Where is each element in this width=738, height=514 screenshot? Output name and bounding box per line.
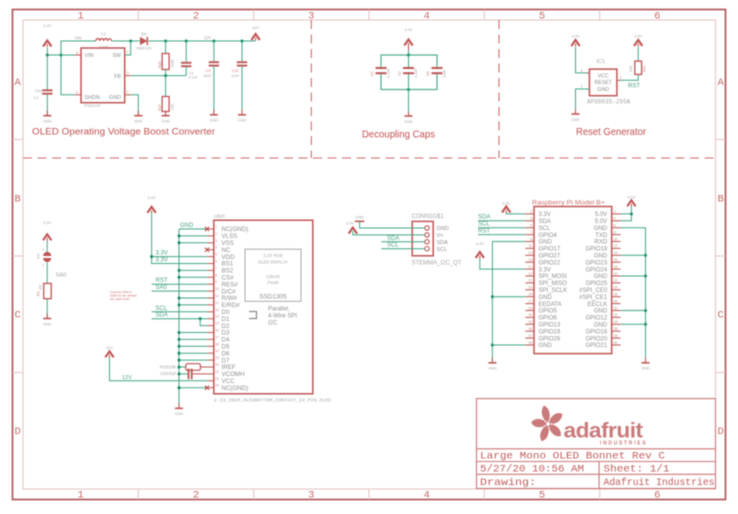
svg-text:R4: R4	[37, 292, 41, 296]
svg-text:12: 12	[614, 244, 618, 248]
svg-text:D: D	[718, 426, 724, 438]
svg-text:3.3V: 3.3V	[346, 222, 354, 226]
svg-text:VIN: VIN	[85, 53, 94, 59]
svg-text:13: 13	[215, 308, 219, 312]
svg-text:GPIO6: GPIO6	[539, 316, 558, 322]
svg-text:SHDN: SHDN	[85, 95, 100, 101]
svg-text:GND: GND	[404, 120, 413, 124]
svg-text:24: 24	[614, 286, 618, 290]
svg-text:3: 3	[215, 239, 217, 243]
svg-text:3: 3	[308, 490, 314, 502]
svg-text:5/27/20 10:56 AM: 5/27/20 10:56 AM	[480, 463, 584, 475]
svg-text:22: 22	[215, 370, 219, 374]
svg-text:5.0V: 5.0V	[627, 194, 636, 199]
svg-text:12V: 12V	[204, 35, 212, 40]
svg-text:D: D	[15, 426, 21, 438]
svg-text:C10: C10	[232, 69, 239, 73]
svg-text:GPIO26: GPIO26	[539, 336, 561, 342]
svg-text:SPI_MOSI: SPI_MOSI	[539, 274, 568, 280]
svg-text:4-Wire SPI: 4-Wire SPI	[268, 313, 297, 319]
svg-text:SCL: SCL	[156, 306, 168, 312]
svg-text:1: 1	[215, 225, 217, 229]
svg-text:GPIO21: GPIO21	[586, 343, 608, 349]
svg-text:R31: R31	[643, 66, 647, 72]
svg-text:R27: R27	[158, 104, 162, 111]
svg-text:SPI_SCLK: SPI_SCLK	[539, 288, 568, 294]
svg-text:7: 7	[215, 266, 217, 270]
svg-text:GND: GND	[597, 87, 609, 93]
svg-text:4: 4	[215, 246, 217, 250]
svg-text:10uF: 10uF	[443, 69, 447, 78]
svg-text:Pixels: Pixels	[267, 280, 278, 285]
svg-text:6: 6	[614, 224, 616, 228]
svg-text:GND: GND	[539, 240, 553, 246]
svg-text:GND: GND	[488, 367, 497, 371]
svg-text:1: 1	[78, 11, 84, 23]
svg-text:10uF: 10uF	[203, 74, 212, 78]
svg-text:4: 4	[76, 91, 78, 95]
svg-text:GND: GND	[43, 322, 52, 326]
svg-text:adafruit: adafruit	[564, 419, 643, 443]
svg-text:2: 2	[620, 76, 622, 80]
svg-text:3.3V: 3.3V	[43, 220, 52, 225]
svg-text:GND: GND	[594, 254, 608, 260]
svg-text:6: 6	[654, 11, 660, 23]
svg-text:L1: L1	[101, 31, 106, 36]
svg-text:GPIO24: GPIO24	[586, 267, 608, 273]
svg-text:21: 21	[215, 363, 219, 367]
svg-text:TXD: TXD	[595, 233, 608, 239]
svg-text:GND: GND	[571, 118, 580, 122]
svg-text:29: 29	[528, 306, 532, 310]
svg-text:20: 20	[614, 272, 618, 276]
svg-text:GND: GND	[539, 295, 553, 301]
svg-text:TPS61070: TPS61070	[84, 104, 101, 108]
svg-text:GPIO27: GPIO27	[539, 254, 561, 260]
svg-text:INDUSTRIES: INDUSTRIES	[600, 440, 647, 446]
svg-text:12: 12	[215, 301, 219, 305]
svg-text:10: 10	[614, 237, 618, 241]
svg-text:3.3V: 3.3V	[147, 195, 156, 200]
svg-text:22: 22	[614, 279, 618, 283]
svg-text:RST: RST	[156, 278, 168, 284]
svg-text:5: 5	[539, 11, 545, 23]
svg-text:128x32: 128x32	[266, 274, 280, 279]
svg-text:I2C addr 0x3C: I2C addr 0x3C	[110, 297, 131, 301]
svg-text:GND: GND	[594, 274, 608, 280]
svg-text:10K: 10K	[629, 65, 633, 72]
svg-text:Adafruit Industries: Adafruit Industries	[604, 477, 715, 488]
svg-text:1: 1	[78, 490, 84, 502]
svg-text:GND: GND	[594, 309, 608, 315]
svg-text:4: 4	[614, 217, 616, 221]
svg-text:Raspberry Pi Model B+: Raspberry Pi Model B+	[532, 200, 605, 207]
svg-text:30: 30	[614, 306, 618, 310]
svg-text:GND: GND	[594, 226, 608, 232]
svg-text:GPIO16: GPIO16	[586, 329, 608, 335]
svg-text:D4: D4	[141, 31, 147, 36]
svg-text:STEMMA_I2C_QT: STEMMA_I2C_QT	[412, 260, 462, 266]
svg-text:A: A	[15, 77, 22, 89]
svg-text:RXD: RXD	[595, 240, 608, 246]
svg-text:9: 9	[530, 237, 532, 241]
svg-text:SDA: SDA	[387, 236, 399, 242]
svg-text:5: 5	[530, 224, 532, 228]
svg-text:C: C	[15, 310, 21, 322]
svg-text:10K: 10K	[39, 283, 43, 290]
svg-text:GND: GND	[641, 367, 650, 371]
svg-text:RST: RST	[628, 84, 640, 90]
svg-text:RESET: RESET	[595, 80, 613, 86]
svg-text:3.3V: 3.3V	[43, 23, 52, 28]
svg-text:8: 8	[614, 230, 616, 234]
svg-text:2.23_INCH_OLEDBOTTOM_CONTACT_2: 2.23_INCH_OLEDBOTTOM_CONTACT_24_PIN_OLED	[214, 398, 331, 404]
svg-text:1: 1	[127, 50, 129, 54]
svg-text:GPIO5: GPIO5	[539, 309, 558, 315]
svg-text:GPIO13: GPIO13	[539, 323, 561, 329]
svg-text:#SPI_CE1: #SPI_CE1	[579, 295, 608, 301]
svg-text:16: 16	[614, 258, 618, 262]
svg-text:SA0: SA0	[156, 285, 168, 291]
svg-text:GND: GND	[180, 223, 194, 229]
svg-text:C: C	[718, 310, 724, 322]
svg-text:GND: GND	[161, 120, 170, 124]
svg-text:SDA: SDA	[156, 313, 168, 319]
svg-text:R26: R26	[158, 61, 162, 68]
svg-text:V+: V+	[437, 233, 444, 239]
svg-text:GPIO12: GPIO12	[586, 316, 608, 322]
svg-text:2.2uF: 2.2uF	[414, 68, 418, 78]
svg-text:28: 28	[614, 299, 618, 303]
svg-text:1: 1	[581, 84, 583, 88]
svg-text:36: 36	[614, 327, 618, 331]
svg-text:5.0V: 5.0V	[595, 212, 607, 218]
svg-text:SA0: SA0	[56, 273, 67, 279]
svg-text:CONN1G$1: CONN1G$1	[412, 214, 445, 220]
svg-text:C2: C2	[398, 71, 402, 76]
svg-text:EECLK: EECLK	[588, 302, 608, 308]
svg-text:4: 4	[424, 490, 430, 502]
svg-text:SW: SW	[112, 53, 122, 59]
svg-text:3.3V: 3.3V	[571, 34, 580, 39]
svg-text:38: 38	[614, 334, 618, 338]
svg-text:SCL: SCL	[478, 222, 490, 228]
svg-text:10K: 10K	[171, 103, 175, 110]
svg-text:GND: GND	[134, 120, 143, 124]
svg-text:Reset Generator: Reset Generator	[576, 127, 647, 138]
svg-text:12V: 12V	[122, 375, 132, 381]
svg-text:16: 16	[215, 329, 219, 333]
svg-text:5: 5	[215, 253, 217, 257]
svg-text:26: 26	[614, 293, 618, 297]
svg-text:11: 11	[215, 294, 219, 298]
svg-text:9: 9	[215, 280, 217, 284]
svg-text:GPIO22: GPIO22	[539, 260, 561, 266]
svg-text:6: 6	[654, 490, 660, 502]
svg-text:37: 37	[528, 334, 532, 338]
svg-text:B: B	[718, 193, 724, 205]
svg-text:GND: GND	[594, 323, 608, 329]
svg-text:VCC: VCC	[598, 73, 609, 79]
svg-text:GND: GND	[175, 412, 184, 416]
svg-text:100K: 100K	[171, 59, 175, 68]
svg-text:GPIO18: GPIO18	[586, 247, 608, 253]
svg-text:C9: C9	[206, 69, 211, 73]
svg-text:SCL: SCL	[539, 226, 551, 232]
svg-text:FB: FB	[114, 74, 121, 80]
svg-text:5: 5	[539, 490, 545, 502]
svg-text:MBR120: MBR120	[137, 46, 152, 50]
svg-text:2: 2	[193, 490, 199, 502]
svg-text:Decoupling Caps: Decoupling Caps	[362, 130, 435, 141]
svg-text:C1: C1	[370, 71, 374, 76]
svg-text:3: 3	[127, 71, 129, 75]
svg-text:OLED DISPLAY: OLED DISPLAY	[258, 260, 288, 265]
svg-text:#SPI_CE0: #SPI_CE0	[579, 288, 608, 294]
svg-text:Sheet: 1/1: Sheet: 1/1	[604, 463, 670, 475]
svg-text:20: 20	[215, 356, 219, 360]
svg-text:GND: GND	[539, 343, 553, 349]
svg-text:0.1uF: 0.1uF	[387, 68, 391, 78]
svg-text:GND: GND	[43, 120, 52, 124]
svg-text:GPIO20: GPIO20	[586, 336, 608, 342]
svg-text:3.3V: 3.3V	[156, 251, 168, 257]
svg-text:SJ1: SJ1	[37, 253, 41, 259]
svg-text:GND: GND	[109, 95, 121, 101]
svg-text:2: 2	[215, 232, 217, 236]
svg-text:5.0V: 5.0V	[595, 219, 607, 225]
svg-text:0.1uF: 0.1uF	[189, 75, 199, 79]
svg-text:3.3V: 3.3V	[539, 212, 551, 218]
svg-text:Large Mono OLED Bonnet Rev C: Large Mono OLED Bonnet Rev C	[480, 451, 665, 463]
svg-text:12V: 12V	[106, 345, 113, 350]
svg-text:2: 2	[127, 90, 129, 94]
svg-text:18: 18	[614, 265, 618, 269]
svg-text:24: 24	[215, 384, 219, 388]
svg-text:C4: C4	[33, 95, 39, 100]
svg-text:GND: GND	[210, 119, 219, 123]
svg-text:3.3V: 3.3V	[404, 27, 413, 32]
svg-text:GND: GND	[238, 119, 247, 123]
svg-text:10uF: 10uF	[35, 88, 45, 93]
svg-text:3.3V: 3.3V	[502, 201, 511, 206]
svg-text:2.23' RGB: 2.23' RGB	[263, 253, 282, 258]
svg-text:19: 19	[528, 272, 532, 276]
svg-text:SCL: SCL	[387, 243, 399, 249]
svg-text:12V: 12V	[252, 25, 259, 30]
svg-text:7: 7	[530, 230, 532, 234]
svg-text:OLED Operating Voltage Boost C: OLED Operating Voltage Boost Converter	[32, 127, 216, 138]
svg-text:RST: RST	[478, 228, 490, 234]
svg-text:3.3V: 3.3V	[156, 258, 168, 264]
svg-text:2: 2	[614, 210, 616, 214]
svg-text:B: B	[15, 193, 21, 205]
svg-text:33: 33	[528, 320, 532, 324]
svg-text:GPIO19: GPIO19	[539, 329, 561, 335]
svg-text:C6: C6	[426, 71, 430, 76]
svg-text:2: 2	[193, 11, 199, 23]
svg-text:14: 14	[614, 251, 618, 255]
svg-text:U$20: U$20	[214, 214, 225, 219]
svg-text:34: 34	[614, 320, 618, 324]
svg-text:Drawing:: Drawing:	[480, 477, 536, 489]
svg-text:3.3V: 3.3V	[539, 267, 551, 273]
svg-text:21: 21	[528, 279, 532, 283]
svg-text:GND: GND	[437, 226, 449, 232]
svg-text:10: 10	[215, 287, 219, 291]
svg-text:40: 40	[614, 341, 618, 345]
svg-text:11: 11	[528, 244, 532, 248]
svg-text:39: 39	[528, 341, 532, 345]
svg-text:14: 14	[215, 315, 219, 319]
svg-text:25: 25	[528, 293, 532, 297]
svg-text:IC1: IC1	[597, 59, 606, 65]
svg-text:EEDATA: EEDATA	[539, 302, 562, 308]
svg-text:I2C: I2C	[268, 320, 278, 326]
svg-text:SDA: SDA	[539, 219, 551, 225]
svg-text:15: 15	[215, 322, 219, 326]
svg-text:6: 6	[215, 260, 217, 264]
svg-text:VIN: VIN	[75, 35, 82, 40]
svg-text:17: 17	[528, 265, 532, 269]
svg-text:23: 23	[215, 377, 219, 381]
svg-text:8: 8	[215, 273, 217, 277]
svg-text:18: 18	[215, 342, 219, 346]
svg-text:31: 31	[528, 313, 532, 317]
svg-text:APX803S-29SA: APX803S-29SA	[587, 98, 631, 105]
svg-text:NC(GND): NC(GND)	[222, 385, 249, 392]
svg-text:5: 5	[76, 51, 78, 55]
svg-text:1: 1	[530, 210, 532, 214]
svg-text:GPIO4: GPIO4	[539, 233, 558, 239]
svg-text:32: 32	[614, 313, 618, 317]
svg-text:GND: GND	[355, 215, 364, 219]
svg-text:R2910K: R2910K	[160, 364, 178, 369]
svg-text:10uF: 10uF	[231, 74, 240, 78]
svg-text:SDA: SDA	[437, 240, 449, 246]
svg-text:SSD1305: SSD1305	[259, 293, 287, 300]
svg-text:13: 13	[528, 251, 532, 255]
svg-text:SCL: SCL	[437, 247, 448, 253]
svg-text:17: 17	[215, 335, 219, 339]
svg-text:35: 35	[528, 327, 532, 331]
svg-text:15: 15	[528, 258, 532, 262]
svg-text:GPIO17: GPIO17	[539, 247, 561, 253]
svg-text:23: 23	[528, 286, 532, 290]
svg-text:GPIO25: GPIO25	[586, 281, 608, 287]
svg-text:C810uF: C810uF	[160, 371, 177, 376]
svg-text:19: 19	[215, 349, 219, 353]
svg-text:Parallel,: Parallel,	[268, 307, 290, 313]
svg-text:SPI_MISO: SPI_MISO	[539, 281, 568, 287]
svg-text:A: A	[718, 77, 725, 89]
svg-text:27: 27	[528, 299, 532, 303]
svg-text:4: 4	[424, 11, 430, 23]
svg-text:GPIO23: GPIO23	[586, 260, 608, 266]
svg-text:3.3V: 3.3V	[634, 34, 643, 39]
svg-text:3: 3	[530, 217, 532, 221]
svg-text:3: 3	[581, 68, 583, 72]
svg-text:SDA: SDA	[478, 215, 490, 221]
svg-text:3.3V: 3.3V	[476, 241, 485, 246]
